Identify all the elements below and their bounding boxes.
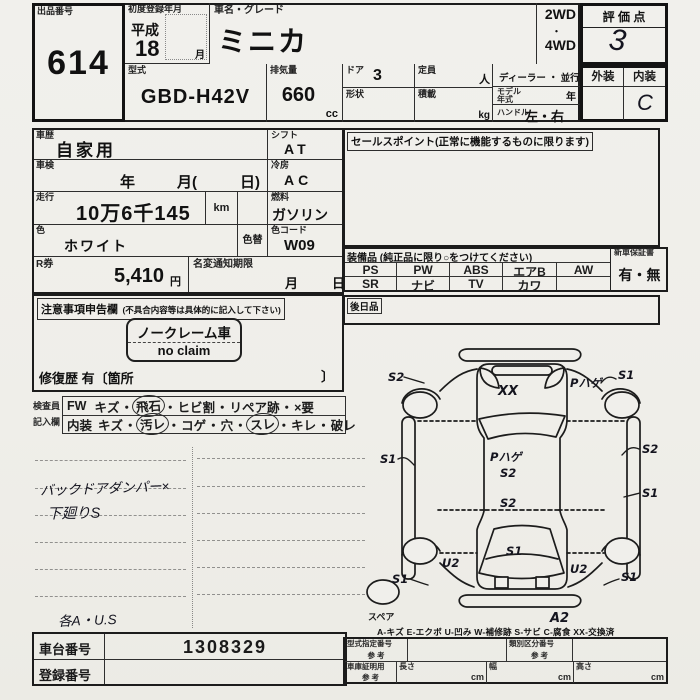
model-code-cell: 型式 GBD-H42V — [125, 64, 267, 122]
separator: ・ — [163, 397, 178, 416]
windshield-band — [479, 413, 565, 439]
fuel-label: 燃料 — [271, 193, 289, 203]
equipment-ps: PS — [345, 262, 397, 276]
recycle-ticket-cell: R券 5,410 円 — [34, 257, 188, 292]
rear-bumper-outline — [459, 595, 581, 607]
door-cell: ドア 3 — [343, 64, 415, 88]
warranty-label: 新車保証書 — [614, 249, 654, 257]
inspection-label: 車検 — [36, 161, 54, 171]
inspector-item-koge: コゲ — [181, 415, 206, 434]
annotation-s2-mid: S2 — [500, 496, 516, 510]
equipment-aw: AW — [557, 262, 610, 276]
writing-line — [35, 596, 186, 597]
history-value: 自家用 — [56, 136, 116, 161]
leader-line — [622, 448, 639, 455]
warranty-cell: 新車保証書 有・無 — [610, 247, 668, 292]
leader-line — [601, 377, 616, 383]
exterior-value — [583, 87, 624, 120]
notes-block: 注意事項申告欄 (不具合内容等は具体的に記入して下さい) ノークレーム車 no … — [32, 294, 344, 392]
inspector-item-kire: キレ — [291, 415, 316, 434]
class-number-value — [573, 639, 666, 662]
name-change-label: 名変通知期限 — [193, 259, 253, 270]
displacement-cell: 排気量 660 cc — [267, 64, 343, 122]
inspector-box: FW キズ・ 飛石・ ヒビ割・ リペア跡・ ×要 内装 キズ・ 汚レ・ コゲ・ … — [62, 396, 346, 434]
warranty-value: 有・無 — [611, 265, 668, 285]
model-year-label2: 年式 — [497, 96, 513, 104]
length-unit: cm — [471, 673, 484, 682]
inspector-item-repair-mark: リペア跡 — [230, 397, 280, 416]
width-unit: cm — [558, 673, 571, 682]
recycle-ticket-label: R券 — [36, 259, 53, 270]
leader-line — [604, 579, 619, 585]
handwritten-note-underside: 下廻りS — [47, 502, 101, 524]
door-label: ドア — [346, 66, 364, 76]
inspector-item-kizu: キズ — [94, 397, 119, 416]
inspector-item-yogore-circled: 汚レ — [135, 412, 169, 436]
annotation-s2-front-left: S2 — [388, 370, 404, 384]
sales-point-label: セールスポイント(正常に機能するものに限ります) — [347, 132, 593, 151]
bottom-right-table: 型式指定番号 参 考 類別区分番号 参 考 車庫証明用 参 考 長さ cm 幅 … — [343, 637, 668, 684]
inspector-item-hibiware: ヒビ割 — [178, 397, 216, 416]
later-items-label: 後日品 — [347, 298, 382, 314]
color-label: 色 — [36, 226, 45, 236]
shift-value: AT — [284, 141, 310, 157]
capacity-cell: 定員 人 — [415, 64, 493, 88]
interior-label: 内装 — [624, 68, 665, 87]
capacity-unit: 人 — [479, 71, 490, 87]
equipment-navi: ナビ — [397, 276, 450, 290]
equipment-leather: カワ — [503, 276, 557, 290]
front-bumper-outline — [459, 349, 581, 361]
width-cell: 幅 cm — [487, 662, 574, 683]
spare-tire-label: スペア — [368, 612, 394, 623]
annotation-s1-front-right: S1 — [618, 368, 634, 382]
inspector-row1-prefix: FW — [67, 399, 86, 413]
no-claim-line2: no claim — [128, 343, 240, 358]
inspector-label-1: 検査員 — [33, 402, 60, 411]
inspector-label-2: 記入欄 — [33, 418, 60, 427]
exterior-label: 外装 — [583, 68, 624, 87]
writing-line — [197, 594, 365, 595]
equipment-sr: SR — [345, 276, 397, 290]
annotation-u2-right: U2 — [570, 562, 587, 576]
chassis-number-value: 1308329 — [105, 634, 345, 660]
writing-line — [197, 540, 365, 541]
shape-label: 形状 — [346, 90, 364, 100]
lot-number-value: 614 — [35, 44, 122, 83]
annotation-p-hage-front-right: Pハゲ — [570, 376, 604, 390]
capacity-label: 定員 — [418, 66, 436, 76]
load-unit: kg — [478, 110, 490, 121]
annotation-s1-rear-left: S1 — [392, 572, 408, 586]
lot-number-label: 出品番号 — [37, 7, 73, 17]
inspection-day: 日) — [240, 171, 260, 192]
auction-sheet: 出品番号 614 初度登録年月 平成 18 月 車名・グレード ミニカ 2WD … — [0, 0, 700, 700]
height-unit: cm — [651, 673, 664, 682]
registration-number-value — [105, 660, 345, 684]
registration-year-value: 18 — [135, 36, 159, 62]
exterior-interior-box: 外装 内装 C — [580, 65, 668, 122]
equipment-pw: PW — [397, 262, 450, 276]
fuel-value: ガソリン — [272, 205, 328, 225]
no-claim-line1: ノークレーム車 — [128, 320, 240, 343]
no-claim-stamp: ノークレーム車 no claim — [126, 318, 242, 362]
inspector-item-yabure: 破レ — [331, 415, 356, 434]
registration-number-label: 登録番号 — [34, 660, 105, 684]
load-cell: 積載 kg — [415, 88, 493, 122]
garage-cert-ref: 参 考 — [345, 674, 396, 682]
model-year-cell: モデル 年式 年 — [493, 87, 580, 105]
recycle-ticket-value: 5,410 — [114, 265, 164, 288]
inspector-row2-prefix: 内装 — [67, 415, 92, 434]
garage-cert-label: 車庫証明用 — [347, 663, 385, 671]
color-code-cell: 色コード W09 — [267, 225, 342, 257]
color-cell: 色 ホワイト 色替 — [34, 225, 267, 257]
shift-label: シフト — [271, 131, 298, 141]
name-change-cell: 名変通知期限 月 日 — [188, 257, 342, 292]
annotation-s1-right-side: S1 — [642, 486, 658, 500]
chassis-number-label: 車台番号 — [34, 634, 105, 660]
writing-line — [197, 486, 365, 487]
notes-label-box: 注意事項申告欄 (不具合内容等は具体的に記入して下さい) — [37, 298, 285, 320]
chassis-table: 車台番号 1308329 登録番号 — [32, 632, 347, 686]
aircon-cell: 冷房 AC — [267, 160, 342, 192]
handle-cell: ハンドル 左・右 — [493, 105, 580, 122]
left-taillight — [495, 577, 508, 588]
model-year-unit: 年 — [566, 88, 576, 103]
right-taillight — [536, 577, 549, 588]
car-name-label: 車名・グレード — [214, 5, 284, 16]
inspector-item-int-kizu: キズ — [98, 415, 123, 434]
mileage-value: 10万6千145 — [76, 197, 191, 226]
height-cell: 高さ cm — [574, 662, 666, 683]
color-code-value: W09 — [284, 237, 315, 254]
dealer-cell: ディーラー ・ 並行 — [493, 64, 580, 87]
left-front-wheel — [403, 392, 437, 418]
model-code-label: 型式 — [128, 66, 146, 76]
car-name-value: ミニカ — [218, 20, 308, 60]
annotation-xx-windshield: XX — [497, 384, 519, 399]
drive-4wd: 4WD — [545, 37, 576, 53]
equipment-tv: TV — [450, 276, 503, 290]
inspector-row-interior: 内装 キズ・ 汚レ・ コゲ・ 穴・ スレ・ キレ・ 破レ — [67, 416, 356, 432]
handwritten-note-backdoor: バックドアダンパー× — [40, 475, 170, 500]
separator: ・ — [280, 397, 295, 416]
width-label: 幅 — [489, 663, 497, 671]
load-label: 積載 — [418, 90, 436, 100]
left-rear-wheel — [403, 538, 437, 564]
displacement-value: 660 — [267, 84, 330, 107]
equipment-abs: ABS — [450, 262, 503, 276]
annotation-p-hage-roof: Pハゲ — [490, 450, 524, 464]
annotation-s1-rear-window: S1 — [506, 544, 522, 558]
writing-line — [197, 458, 365, 459]
inspection-month: 月( — [177, 171, 197, 192]
equipment-airbag: エアB — [503, 262, 557, 276]
color-change-label: 色替 — [237, 225, 267, 257]
name-change-month: 月 — [285, 273, 298, 292]
separator: ・ — [215, 397, 230, 416]
color-value: ホワイト — [64, 236, 128, 256]
inspection-year: 年 — [120, 171, 135, 192]
separator: ・ — [206, 415, 221, 434]
inspector-item-replace-needed: ×要 — [294, 397, 314, 416]
handwritten-note-aus: 各A・U.S — [58, 608, 117, 630]
type-designation-cell: 型式指定番号 参 考 — [345, 639, 408, 662]
left-front-connector — [440, 369, 477, 391]
annotation-s2-right-side: S2 — [642, 442, 658, 456]
dealer-parallel-label: ディーラー ・ 並行 — [499, 70, 580, 84]
first-registration-cell: 初度登録年月 平成 18 月 — [125, 3, 210, 64]
writing-line — [35, 460, 186, 461]
shape-cell: 形状 — [343, 88, 415, 122]
mileage-unit: km — [205, 192, 238, 225]
type-designation-value — [408, 639, 507, 662]
leader-line — [404, 377, 424, 383]
notes-label-main: 注意事項申告欄 — [41, 304, 118, 316]
score-box: 評 価 点 3 — [580, 3, 668, 65]
right-front-wheel — [605, 392, 639, 418]
fuel-cell: 燃料 ガソリン — [267, 192, 342, 225]
mileage-label: 走行 — [36, 193, 54, 203]
class-number-ref: 参 考 — [507, 652, 572, 660]
class-number-label: 類別区分番号 — [509, 640, 554, 648]
annotation-s1-rear-right: S1 — [621, 570, 637, 584]
writing-column-line — [192, 447, 193, 628]
aircon-label: 冷房 — [271, 161, 289, 171]
drive-type-cell: 2WD ・ 4WD — [537, 3, 580, 64]
handle-value: 左・右 — [525, 106, 564, 125]
annotation-a2-rear-bumper: A2 — [549, 611, 569, 625]
score-value: 3 — [607, 23, 628, 59]
type-designation-ref: 参 考 — [345, 652, 407, 660]
left-vent — [480, 368, 499, 388]
separator: ・ — [316, 415, 331, 434]
displacement-label: 排気量 — [270, 66, 297, 76]
interior-value: C — [637, 90, 653, 116]
writing-line — [197, 513, 365, 514]
later-items-box: 後日品 — [343, 295, 660, 325]
door-value: 3 — [373, 67, 382, 85]
writing-line — [35, 542, 186, 543]
car-name-cell: 車名・グレード ミニカ — [210, 3, 537, 64]
month-suffix: 月 — [195, 46, 205, 61]
annotation-u2-left: U2 — [442, 556, 459, 570]
history-cell: 車歴 自家用 — [34, 130, 267, 160]
mileage-cell: 走行 10万6千145 km — [34, 192, 267, 225]
sales-point-box: セールスポイント(正常に機能するものに限ります) — [343, 128, 660, 247]
length-label: 長さ — [399, 663, 415, 671]
right-vent — [545, 368, 564, 388]
notes-label-sub: (不具合内容等は具体的に記入して下さい) — [122, 305, 280, 315]
aircon-value: AC — [284, 172, 312, 188]
inspector-row-fw: FW キズ・ 飛石・ ヒビ割・ リペア跡・ ×要 — [67, 398, 314, 414]
lot-number-box: 出品番号 614 — [32, 3, 125, 122]
inspector-item-ana: 穴 — [221, 415, 234, 434]
recycle-ticket-unit: 円 — [170, 273, 181, 289]
height-label: 高さ — [576, 663, 592, 671]
writing-line — [197, 567, 365, 568]
repair-history-bracket: 〕 — [321, 366, 334, 385]
inspection-cell: 車検 年 月( 日) — [34, 160, 267, 192]
color-code-label: 色コード — [271, 226, 307, 236]
length-cell: 長さ cm — [397, 662, 487, 683]
leader-line — [398, 458, 414, 465]
model-code-value: GBD-H42V — [125, 86, 266, 109]
garage-cert-cell: 車庫証明用 参 考 — [345, 662, 397, 683]
equipment-empty — [557, 276, 610, 290]
writing-line — [35, 569, 186, 570]
repair-history-text: 修復歴 有〔箇所 — [39, 368, 134, 387]
annotation-s2-roof: S2 — [500, 466, 516, 480]
type-designation-label: 型式指定番号 — [347, 640, 392, 648]
displacement-unit: cc — [326, 108, 338, 120]
history-label: 車歴 — [36, 131, 54, 141]
hood-band — [492, 366, 552, 375]
inspector-item-sure-circled: スレ — [245, 412, 279, 436]
class-number-cell: 類別区分番号 参 考 — [507, 639, 573, 662]
leader-line — [410, 579, 428, 585]
right-rear-wheel — [605, 538, 639, 564]
drive-2wd: 2WD — [545, 6, 576, 22]
annotation-s1-left-side: S1 — [380, 452, 396, 466]
car-damage-diagram: S2 XX Pハゲ S1 S1 Pハゲ S2 S2 S1 S2 S1 U2 U2… — [358, 333, 670, 625]
shift-cell: シフト AT — [267, 130, 342, 160]
